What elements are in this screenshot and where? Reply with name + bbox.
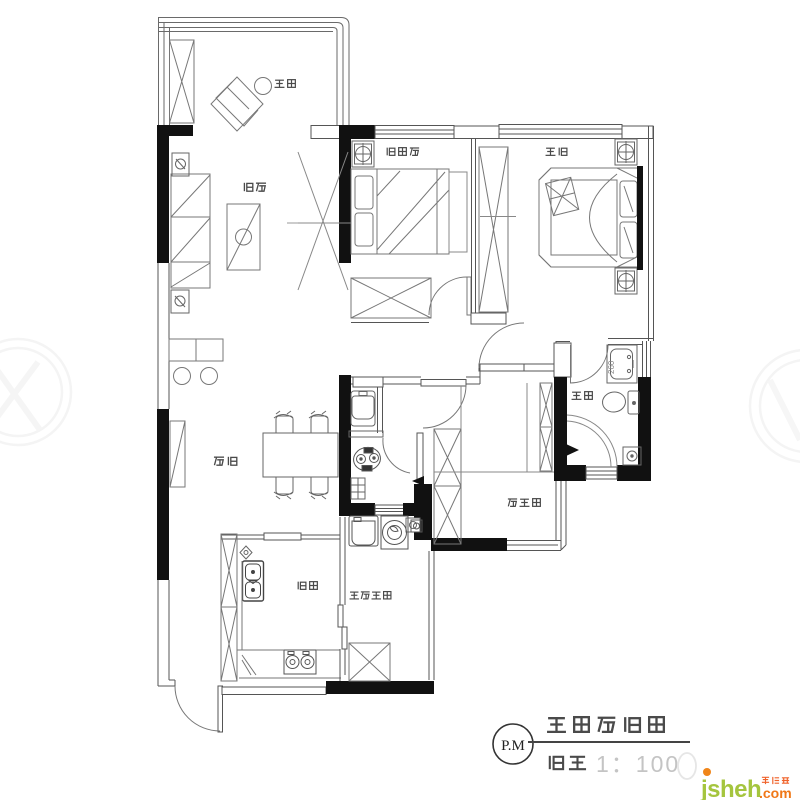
svg-text:jsheh: jsheh <box>700 776 761 800</box>
svg-text:P.M: P.M <box>501 738 525 754</box>
svg-text:260: 260 <box>607 360 616 374</box>
svg-text:.com: .com <box>759 785 792 800</box>
svg-text:1：100: 1：100 <box>596 751 680 777</box>
